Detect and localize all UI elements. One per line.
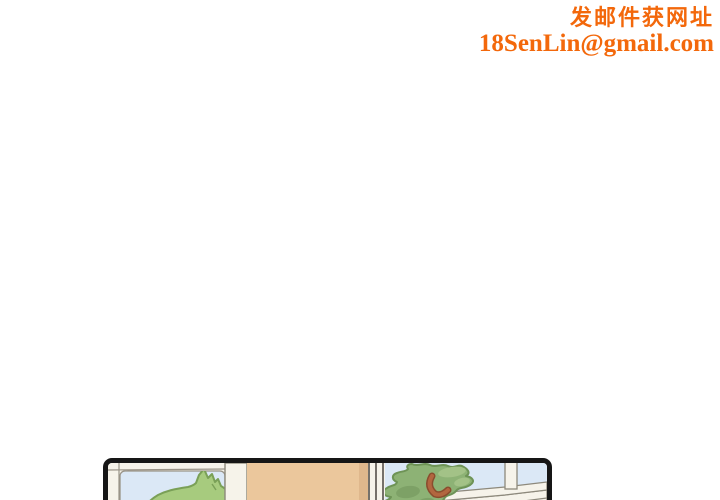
- promo-text: 发邮件获网址: [479, 5, 714, 31]
- comic-panel-art: [108, 463, 547, 500]
- right-window: [379, 463, 547, 500]
- comic-panel: [103, 458, 552, 500]
- window-frame-bar: [225, 463, 247, 500]
- tan-wall: [247, 463, 368, 500]
- left-window: [108, 463, 247, 500]
- right-window-frame: [368, 463, 385, 500]
- header-promo-block: 发邮件获网址 18SenLin@gmail.com: [479, 5, 714, 56]
- email-text: 18SenLin@gmail.com: [479, 31, 714, 56]
- comic-page: 发邮件获网址 18SenLin@gmail.com: [0, 0, 720, 500]
